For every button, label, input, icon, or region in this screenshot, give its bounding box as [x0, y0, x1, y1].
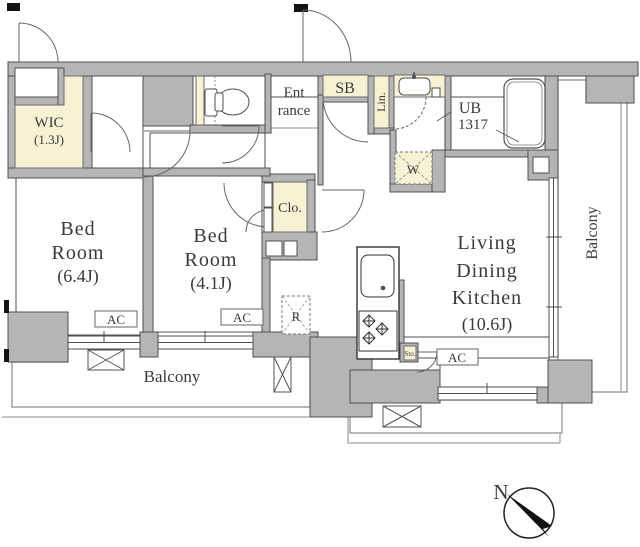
bedroom2-size: (4.1J)	[190, 273, 232, 294]
bedroom2-label-1: Bed	[193, 225, 228, 247]
wic-size: (1.3J)	[34, 132, 64, 147]
linen-label: Lin.	[374, 92, 388, 112]
balcony-right-label: Balcony	[584, 206, 601, 259]
unit-bath-label: UB	[459, 100, 481, 117]
kitchen-sink	[361, 255, 394, 297]
entrance-label-1: Ent	[284, 85, 306, 101]
pillar-mark	[4, 349, 9, 362]
meter-door-leaf	[7, 3, 20, 11]
bedroom1-label-2: Room	[52, 242, 105, 264]
ac-bedroom1-label: AC	[107, 312, 125, 327]
balcony-bottom-label: Balcony	[144, 367, 201, 386]
bedroom2-label-2: Room	[185, 249, 238, 271]
ldk-label-2: Dining	[456, 260, 518, 282]
shoe-box-label: SB	[335, 80, 355, 97]
wic-label: WIC	[34, 115, 63, 131]
bedroom2-window	[158, 331, 253, 349]
entrance-label-2: rance	[278, 103, 311, 119]
balcony-lower-floor	[350, 400, 562, 433]
storage-label: Sto.	[404, 350, 415, 358]
meter-box-door	[19, 23, 58, 62]
pillar-mark	[4, 300, 9, 313]
ldk-label-1: Living	[457, 232, 516, 254]
bedroom1-size: (6.4J)	[57, 266, 99, 287]
ac-ldk-label: AC	[448, 350, 466, 365]
toilet-seat	[215, 93, 223, 111]
washer-label: W	[407, 162, 420, 177]
kitchen-counter	[357, 247, 399, 359]
kitchen-faucet	[381, 286, 386, 291]
corridor-west-floor	[92, 76, 143, 168]
fridge-label: R	[292, 309, 301, 324]
meter-box-alcove	[15, 68, 58, 97]
floor-plan-canvas: N WIC (1.3J) Bed Room (6.4J) Bed Room (4…	[0, 0, 640, 547]
ldk-size: (10.6J)	[462, 314, 513, 335]
compass: N	[493, 480, 554, 538]
entrance-door-leaf	[294, 4, 308, 12]
ldk-label-3: Kitchen	[452, 287, 522, 309]
outdoor-unit	[274, 357, 291, 392]
front-door	[303, 10, 351, 62]
unit-bath-size: 1317	[458, 117, 489, 133]
bedroom1-label-1: Bed	[60, 218, 95, 240]
outdoor-unit	[88, 350, 124, 370]
closet-label: Clo.	[278, 201, 302, 216]
compass-north-label: N	[493, 480, 508, 504]
outdoor-unit	[383, 406, 421, 427]
toilet-counter	[196, 76, 204, 125]
ac-bedroom2-label: AC	[233, 310, 251, 325]
floor-plan: N WIC (1.3J) Bed Room (6.4J) Bed Room (4…	[0, 0, 640, 547]
